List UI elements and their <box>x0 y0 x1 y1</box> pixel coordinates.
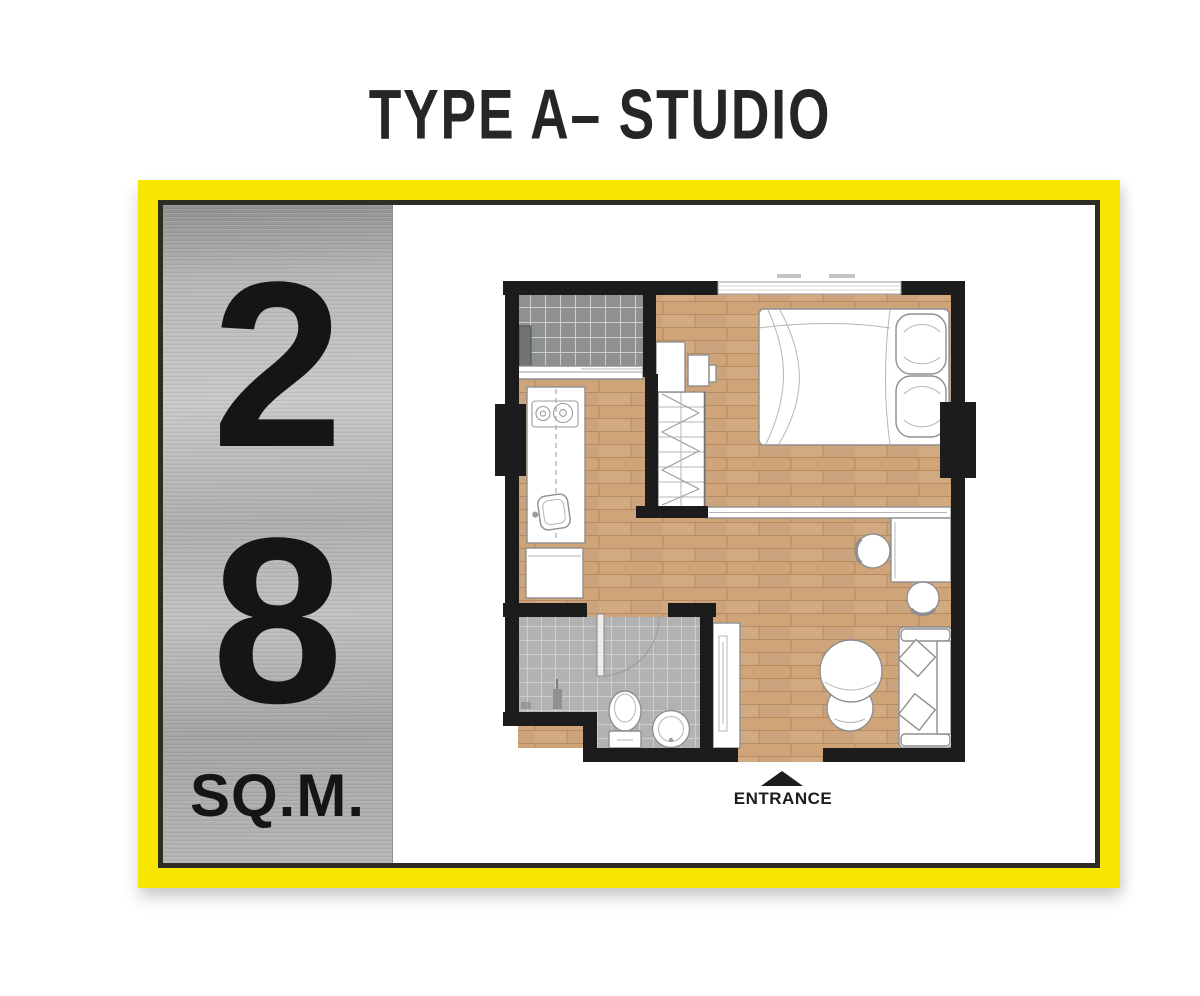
desk <box>891 518 951 582</box>
toilet <box>609 691 641 748</box>
shoe-cabinet <box>713 623 740 748</box>
desk-chair-bottom <box>907 582 939 614</box>
wash-basin <box>653 711 690 748</box>
window-right-block <box>940 402 976 478</box>
desk-chair-left <box>856 534 890 568</box>
window-top <box>718 274 901 294</box>
partition-shelf <box>706 507 951 518</box>
dimension-mark <box>829 274 855 278</box>
floor-plan <box>485 262 990 772</box>
wardrobe <box>658 392 705 507</box>
fridge <box>526 548 583 598</box>
sliding-door <box>518 366 643 379</box>
balcony-fixture <box>519 326 531 366</box>
entrance-arrow-icon <box>761 771 803 786</box>
double-bed <box>759 309 949 445</box>
floor-plan-card: 2 8 SQ.M. <box>138 180 1120 888</box>
area-panel: 2 8 SQ.M. <box>163 205 393 863</box>
kitchen <box>526 387 585 598</box>
floor-plan-drawing <box>485 262 990 772</box>
window-left-block <box>495 404 526 476</box>
tv <box>688 355 709 386</box>
card-inner: 2 8 SQ.M. <box>158 200 1100 868</box>
page-title: TYPE A– STUDIO <box>48 74 1152 156</box>
balcony <box>518 290 643 379</box>
area-digit-tens: 2 <box>163 277 392 454</box>
page: TYPE A– STUDIO 2 8 SQ.M. <box>0 0 1200 996</box>
area-unit: SQ.M. <box>163 761 392 830</box>
entrance-label: ENTRANCE <box>693 789 873 809</box>
dimension-mark <box>777 274 801 278</box>
sofa <box>899 627 952 748</box>
area-digit-ones: 8 <box>163 533 392 710</box>
bathroom-door-leaf <box>597 614 604 676</box>
